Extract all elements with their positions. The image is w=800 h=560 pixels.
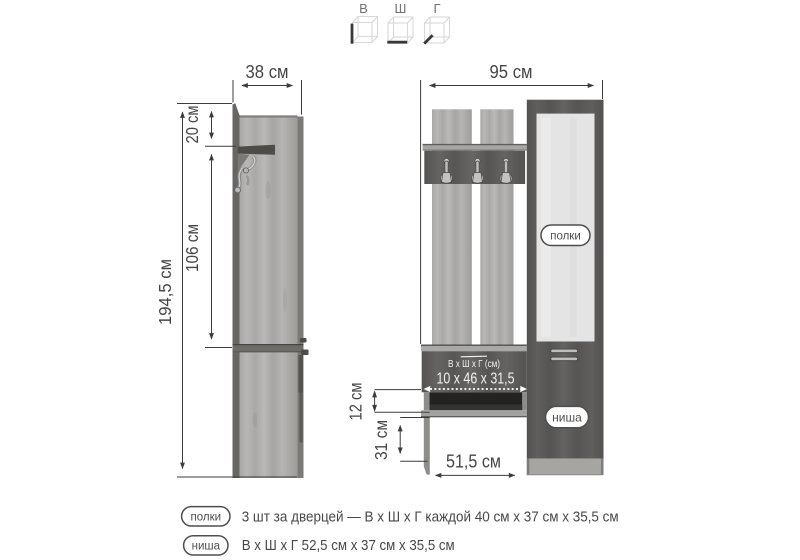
svg-text:51,5 см: 51,5 см xyxy=(446,451,501,472)
svg-text:ниша: ниша xyxy=(192,541,221,553)
svg-text:В х Ш х Г 52,5 см х 37 см х 35: В х Ш х Г 52,5 см х 37 см х 35,5 см xyxy=(242,538,455,554)
svg-text:12 см: 12 см xyxy=(346,383,366,421)
svg-text:полки: полки xyxy=(191,512,222,524)
svg-text:194,5 см: 194,5 см xyxy=(155,259,175,325)
svg-text:В: В xyxy=(359,1,368,16)
svg-text:106 см: 106 см xyxy=(182,224,202,272)
svg-text:95 см: 95 см xyxy=(490,61,533,82)
svg-text:Ш: Ш xyxy=(395,1,407,16)
svg-text:3 шт за дверцей — В х Ш х Г ка: 3 шт за дверцей — В х Ш х Г каждой 40 см… xyxy=(242,510,619,526)
svg-text:В х Ш х Г (см): В х Ш х Г (см) xyxy=(448,358,500,370)
svg-text:10 х 46 х 31,5: 10 х 46 х 31,5 xyxy=(437,370,515,387)
svg-text:20 см: 20 см xyxy=(182,106,202,144)
svg-text:полки: полки xyxy=(550,231,581,243)
svg-text:38 см: 38 см xyxy=(246,61,289,82)
svg-text:31 см: 31 см xyxy=(371,420,391,460)
svg-text:Г: Г xyxy=(433,1,440,16)
svg-text:ниша: ниша xyxy=(552,411,582,425)
